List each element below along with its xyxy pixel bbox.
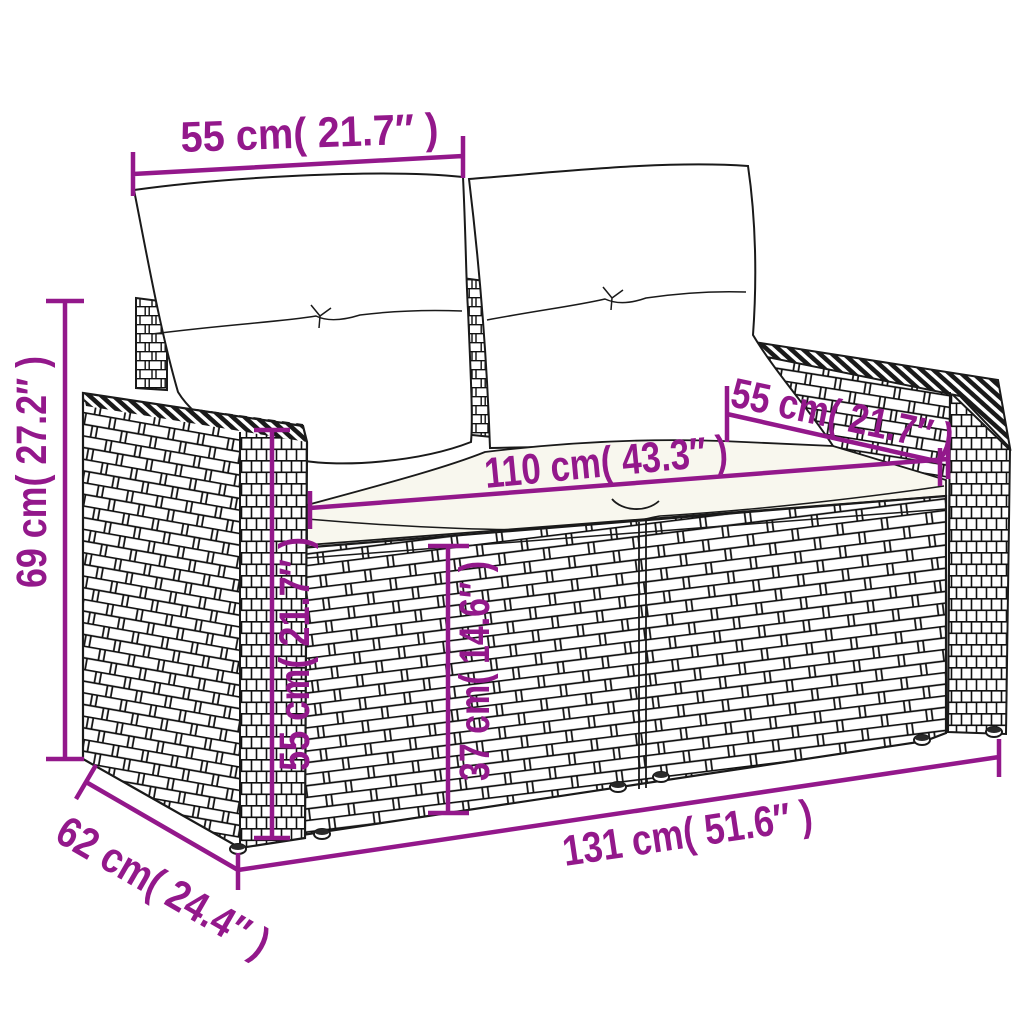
svg-text:55 cm( 21.7″ ): 55 cm( 21.7″ ) (271, 537, 319, 771)
svg-text:55 cm( 21.7″ ): 55 cm( 21.7″ ) (180, 105, 440, 162)
svg-text:37 cm( 14.6″ ): 37 cm( 14.6″ ) (451, 561, 499, 781)
svg-text:69 cm( 27.2″ ): 69 cm( 27.2″ ) (8, 356, 56, 588)
